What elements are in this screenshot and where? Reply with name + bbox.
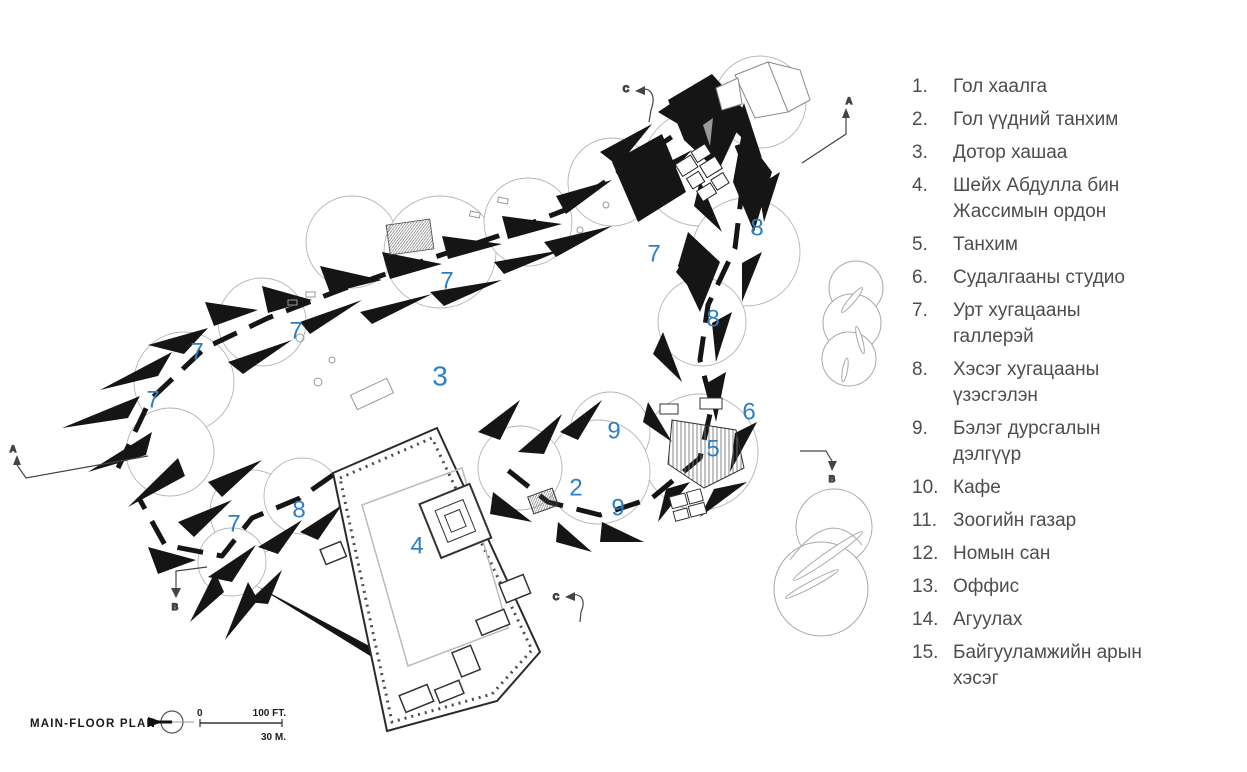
legend-item: 13.Оффис <box>912 574 1212 600</box>
legend-item: 14.Агуулах <box>912 607 1212 633</box>
legend-item: 10.Кафе <box>912 475 1212 501</box>
section-marker-label: A <box>10 444 17 454</box>
legend-list: 1.Гол хаалга 2.Гол үүдний танхим 3.Дотор… <box>912 74 1212 692</box>
legend-item-number: 7. <box>912 298 953 324</box>
section-marker-label: C <box>623 84 630 94</box>
floor-plan-svg: C A A B <box>0 0 900 772</box>
section-marker-label: A <box>846 96 853 106</box>
room-number: 9 <box>607 418 620 445</box>
legend-item-number: 14. <box>912 607 953 633</box>
legend-item-label: Гол үүдний танхим <box>953 107 1145 133</box>
room-number: 3 <box>432 361 448 392</box>
legend-item-number: 13. <box>912 574 953 600</box>
legend-item-label: Гол хаалга <box>953 74 1145 100</box>
legend-item-number: 12. <box>912 541 953 567</box>
legend-item-label: Агуулах <box>953 607 1145 633</box>
section-marker-b-right: B <box>800 451 837 484</box>
legend-item-number: 11. <box>912 508 953 534</box>
legend-item: 15.Байгууламжийн арын хэсэг <box>912 640 1212 692</box>
room-number: 7 <box>146 387 159 414</box>
room-number: 2 <box>569 475 582 502</box>
legend-item-label: Танхим <box>953 232 1145 258</box>
section-marker-label: B <box>829 474 836 484</box>
room-number: 7 <box>440 268 453 295</box>
plan-title: MAIN-FLOOR PLAN <box>30 718 156 730</box>
section-marker-c-top: C <box>623 84 653 122</box>
title-block: MAIN-FLOOR PLAN 0 100 FT. 30 M. <box>30 708 286 743</box>
legend-item-label: Бэлэг дурсгалын дэлгүүр <box>953 416 1145 468</box>
legend-item-number: 15. <box>912 640 953 666</box>
room-number: 5 <box>706 436 719 463</box>
legend-item: 6.Судалгааны студио <box>912 265 1212 291</box>
legend-item: 5.Танхим <box>912 232 1212 258</box>
section-marker-a-top: A <box>802 96 853 163</box>
legend-item: 12.Номын сан <box>912 541 1212 567</box>
legend-item-label: Урт хугацааны галлерэй <box>953 298 1145 350</box>
legend-item-number: 2. <box>912 107 953 133</box>
legend-item-label: Байгууламжийн арын хэсэг <box>953 640 1145 692</box>
legend-item: 11.Зоогийн газар <box>912 508 1212 534</box>
trees <box>774 261 883 636</box>
legend-item-label: Кафе <box>953 475 1145 501</box>
room-number: 8 <box>706 306 719 333</box>
room-number: 7 <box>227 511 240 538</box>
legend-item-number: 9. <box>912 416 953 442</box>
legend-item-number: 8. <box>912 357 953 383</box>
legend-item-label: Судалгааны студио <box>953 265 1145 291</box>
legend-item: 7.Урт хугацааны галлерэй <box>912 298 1212 350</box>
room-number: 9 <box>611 495 624 522</box>
scale-zero: 0 <box>197 708 203 719</box>
legend-item-label: Хэсэг хугацааны үзэсгэлэн <box>953 357 1145 409</box>
legend-item-label: Оффис <box>953 574 1145 600</box>
scale-bar: 0 100 FT. 30 M. <box>197 708 286 743</box>
legend-item-number: 5. <box>912 232 953 258</box>
legend-item-label: Шейх Абдулла бин Жассимын ордон <box>953 173 1145 225</box>
legend-item: 8.Хэсэг хугацааны үзэсгэлэн <box>912 357 1212 409</box>
legend-item-label: Номын сан <box>953 541 1145 567</box>
section-marker-label: B <box>172 602 179 612</box>
room-number: 7 <box>190 339 203 366</box>
legend-item-number: 4. <box>912 173 953 199</box>
section-marker-label: C <box>553 592 560 602</box>
legend-item-label: Зоогийн газар <box>953 508 1145 534</box>
legend-item: 9.Бэлэг дурсгалын дэлгүүр <box>912 416 1212 468</box>
room-number: 8 <box>292 497 305 524</box>
room-number: 8 <box>750 215 763 242</box>
room-number: 7 <box>289 318 302 345</box>
floor-plan: C A A B <box>0 0 900 772</box>
room-number: 6 <box>742 399 755 426</box>
legend-item: 4.Шейх Абдулла бин Жассимын ордон <box>912 173 1212 225</box>
legend-item-number: 3. <box>912 140 953 166</box>
page: C A A B <box>0 0 1247 772</box>
section-marker-c-bottom: C <box>553 592 583 622</box>
room-number: 7 <box>647 241 660 268</box>
scale-meters: 30 M. <box>261 732 286 743</box>
legend-item-number: 10. <box>912 475 953 501</box>
scale-feet: 100 FT. <box>253 708 287 719</box>
legend-item: 3.Дотор хашаа <box>912 140 1212 166</box>
legend-item: 1.Гол хаалга <box>912 74 1212 100</box>
legend-item: 2.Гол үүдний танхим <box>912 107 1212 133</box>
legend-item-number: 1. <box>912 74 953 100</box>
legend-item-label: Дотор хашаа <box>953 140 1145 166</box>
legend-item-number: 6. <box>912 265 953 291</box>
legend: 1.Гол хаалга 2.Гол үүдний танхим 3.Дотор… <box>912 74 1212 699</box>
room-number: 4 <box>410 533 423 560</box>
